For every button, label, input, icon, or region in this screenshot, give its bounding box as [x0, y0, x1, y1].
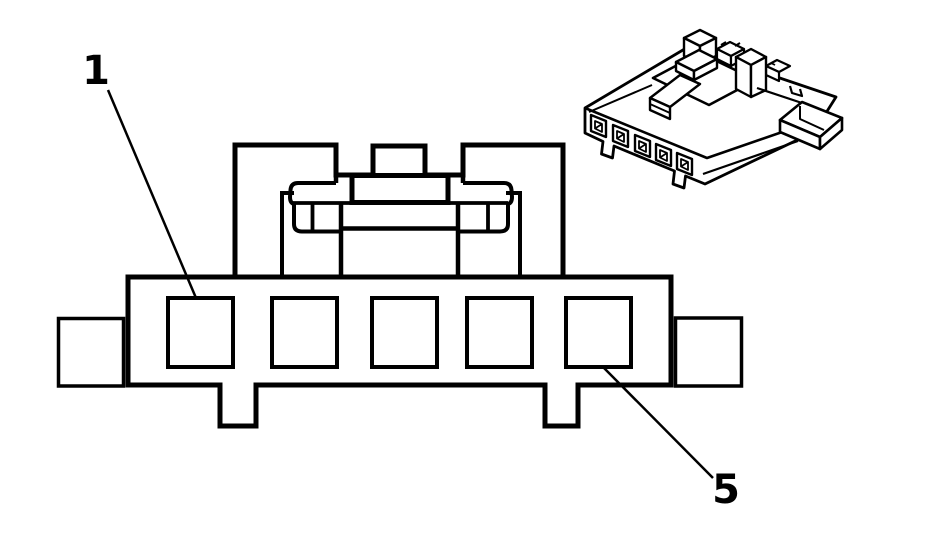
- cavity-5: [566, 298, 631, 367]
- leader-line-1: [108, 90, 196, 298]
- connector-diagram: [0, 0, 928, 552]
- cavity-4: [467, 298, 532, 367]
- cavity-2: [272, 298, 337, 367]
- cavity-1: [168, 298, 233, 367]
- latch-window: [352, 176, 448, 203]
- callout-label-5: 5: [706, 470, 746, 510]
- cavity-3: [372, 298, 437, 367]
- isometric-view: [585, 30, 842, 188]
- front-view: [59, 145, 742, 426]
- left-wing: [59, 319, 124, 387]
- callout-label-1: 1: [76, 51, 116, 91]
- right-wing: [676, 318, 742, 386]
- top-assembly-outline: [235, 145, 563, 279]
- iso-rear-clip: [766, 60, 790, 81]
- diagram-canvas: 1 5: [0, 0, 928, 552]
